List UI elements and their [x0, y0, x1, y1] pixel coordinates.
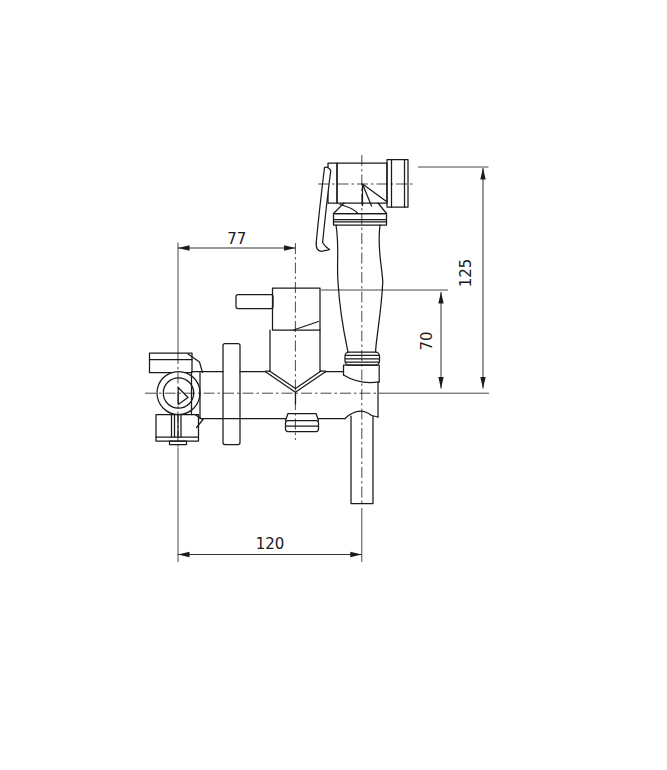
dimension-125: 125 [457, 168, 486, 389]
dim-label-120: 120 [256, 535, 285, 553]
dim-label-125: 125 [457, 259, 475, 288]
dimension-120: 120 [178, 535, 362, 558]
drawing-svg: 77 125 70 120 [0, 0, 667, 770]
wall-flange [223, 344, 240, 445]
arrowhead-left [178, 245, 190, 250]
arrowhead-right [284, 245, 295, 250]
dim-label-70: 70 [418, 331, 436, 350]
aerator-cap [286, 414, 319, 432]
mixer-lever-cartridge [236, 288, 326, 404]
grip-base-bell [344, 365, 380, 383]
dim-label-77: 77 [227, 230, 246, 248]
arrowhead-up [480, 168, 485, 180]
grip-ring [345, 352, 380, 365]
arrowhead-left [178, 552, 190, 557]
technical-drawing-canvas: 77 125 70 120 [0, 0, 667, 770]
spray-head-nozzle-cap [387, 160, 408, 208]
trigger-lever [316, 167, 331, 251]
arrowhead-up [438, 292, 443, 304]
arrowhead-down [480, 377, 485, 389]
inlet-valve [150, 353, 204, 445]
dimension-70: 70 [418, 292, 444, 389]
mixer-lever-handle [236, 295, 273, 309]
handle-grip [336, 225, 383, 383]
arrowhead-right [350, 552, 362, 557]
arrowhead-down [438, 377, 443, 389]
spray-head-base [334, 203, 387, 225]
dimension-77: 77 [178, 230, 295, 251]
